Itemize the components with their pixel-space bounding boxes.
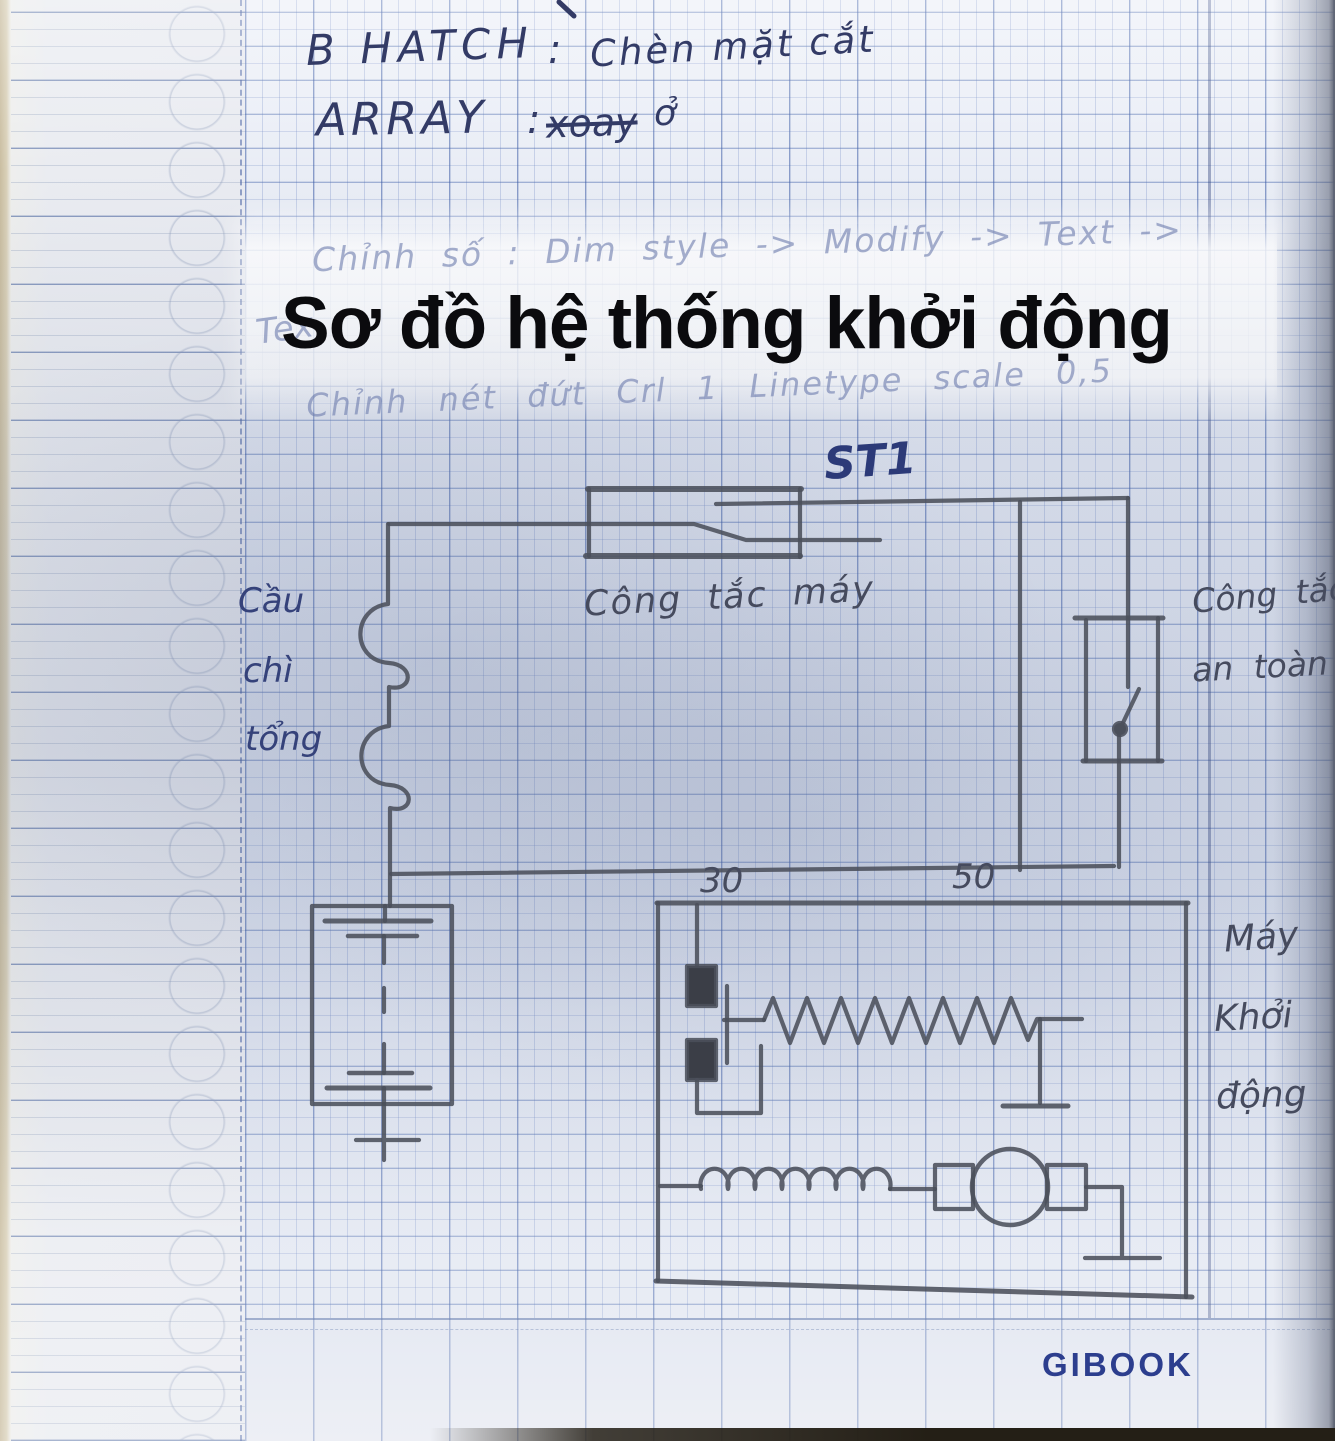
note-array-struck-word: xoay [545,102,638,143]
motor-brush-left [935,1165,973,1209]
motor-circle [972,1149,1048,1225]
label-starter-line1: Máy [1223,917,1300,958]
ignition-output-wire [716,498,1128,504]
label-terminal-50: 50 [952,860,995,894]
battery-plates [325,921,431,1088]
pen-mark [559,2,574,16]
starter-box [656,903,1192,1297]
note-bhatch-colon: : [548,30,561,70]
label-fuse-line3: tổng [245,722,322,756]
rail-wire [391,866,1114,874]
label-starter-line2: Khởi [1213,998,1293,1038]
label-safety-switch-line2: an toàn [1191,646,1328,686]
label-starter-line3: động [1215,1076,1307,1115]
gibook-logo: GIBOOK [1042,1346,1194,1384]
hold-in-winding [764,998,1082,1043]
solenoid-contact-lower [687,1040,716,1080]
label-st1: ST1 [823,437,918,487]
solenoid-contact-upper [687,966,716,1006]
battery-ground [356,1104,419,1160]
label-terminal-30: 30 [700,864,743,898]
note-bhatch-label: B HATCH [305,22,534,72]
note-array-tail: ở [654,96,676,132]
main-fuse [360,524,408,906]
label-fuse-line1: Cầu [238,584,304,618]
note-array-colon: : [527,100,540,140]
notebook-photo: Chỉnh số : Dim style -> Modify -> Text -… [0,0,1335,1441]
pull-in-coil [701,1169,891,1189]
starting-system-circuit-sketch [0,0,1335,1441]
motor-ground [1085,1187,1160,1258]
label-fuse-line2: chì [243,654,293,688]
ignition-switch-lever [389,524,880,540]
safety-switch-lever [1121,689,1139,727]
motor-brush-right [1047,1165,1086,1209]
page-title: Sơ đồ hệ thống khởi động [281,282,1172,365]
note-array-label: ARRAY [316,95,488,143]
